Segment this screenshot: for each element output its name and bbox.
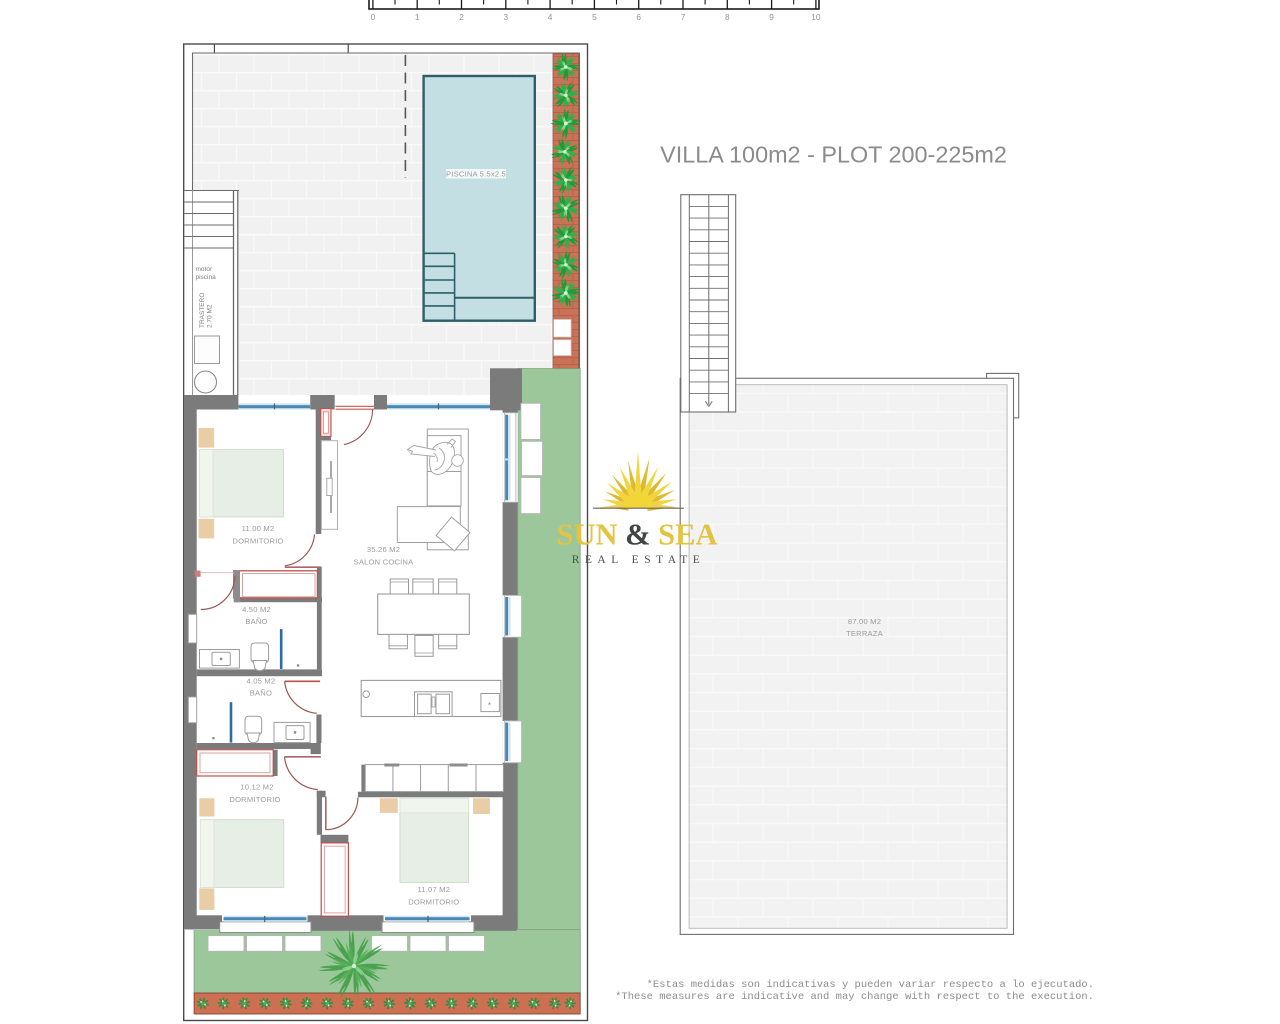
svg-text:1: 1 xyxy=(415,12,420,22)
svg-text:BAÑO: BAÑO xyxy=(250,689,272,698)
svg-text:REAL ESTATE: REAL ESTATE xyxy=(572,554,706,566)
svg-text:0: 0 xyxy=(371,12,376,22)
svg-text:5: 5 xyxy=(592,12,597,22)
svg-text:DORMITORIO: DORMITORIO xyxy=(408,898,459,907)
svg-text:TERRAZA: TERRAZA xyxy=(846,629,884,638)
svg-text:8: 8 xyxy=(725,12,730,22)
svg-text:SALON COCINA: SALON COCINA xyxy=(354,558,415,567)
svg-text:2: 2 xyxy=(459,12,464,22)
svg-text:11.00 M2: 11.00 M2 xyxy=(242,524,275,533)
svg-text:35.26 M2: 35.26 M2 xyxy=(367,545,400,554)
svg-text:10: 10 xyxy=(811,12,821,22)
svg-text:10.12 M2: 10.12 M2 xyxy=(240,783,273,792)
svg-text:6: 6 xyxy=(636,12,641,22)
svg-text:DORMITORIO: DORMITORIO xyxy=(232,537,283,546)
svg-text:87.00 M2: 87.00 M2 xyxy=(848,617,881,626)
svg-text:4.05 M2: 4.05 M2 xyxy=(246,677,275,686)
svg-text:4: 4 xyxy=(548,12,553,22)
svg-text:*Estas medidas son indicativas: *Estas medidas son indicativas y pueden … xyxy=(647,979,1094,991)
svg-text:BAÑO: BAÑO xyxy=(245,617,267,626)
svg-text:motor: motor xyxy=(196,266,213,273)
svg-text:TRASTERO: TRASTERO xyxy=(199,293,206,328)
svg-text:VILLA 100m2 - PLOT 200-225m2: VILLA 100m2 - PLOT 200-225m2 xyxy=(660,142,1007,168)
svg-text:3: 3 xyxy=(503,12,508,22)
svg-text:11.07 M2: 11.07 M2 xyxy=(417,885,450,894)
svg-text:*These measures are indicative: *These measures are indicative and may c… xyxy=(615,991,1094,1003)
svg-text:piscina: piscina xyxy=(196,274,217,281)
svg-text:SUN & SEA: SUN & SEA xyxy=(556,518,717,552)
svg-text:9: 9 xyxy=(769,12,774,22)
svg-text:4.50 M2: 4.50 M2 xyxy=(242,605,271,614)
svg-text:PISCINA 5.5x2.5: PISCINA 5.5x2.5 xyxy=(446,170,506,179)
svg-text:2.70 M2: 2.70 M2 xyxy=(207,304,214,328)
svg-text:DORMITORIO: DORMITORIO xyxy=(229,795,280,804)
svg-text:7: 7 xyxy=(681,12,686,22)
